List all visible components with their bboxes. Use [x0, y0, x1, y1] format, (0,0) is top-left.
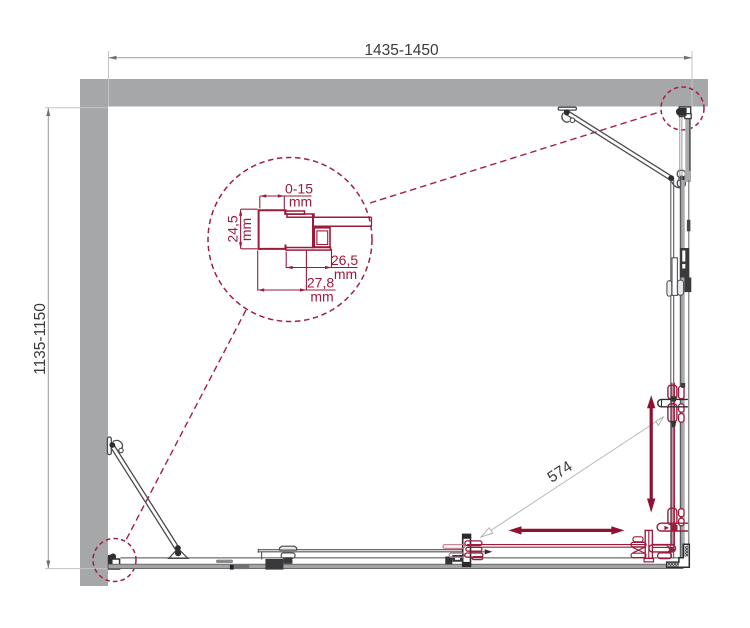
svg-text:1135-1150: 1135-1150: [32, 303, 49, 375]
svg-text:1435-1450: 1435-1450: [364, 42, 439, 59]
svg-text:mm: mm: [334, 266, 357, 282]
svg-text:mm: mm: [310, 288, 333, 304]
svg-text:mm: mm: [238, 218, 254, 241]
svg-text:mm: mm: [289, 194, 312, 210]
